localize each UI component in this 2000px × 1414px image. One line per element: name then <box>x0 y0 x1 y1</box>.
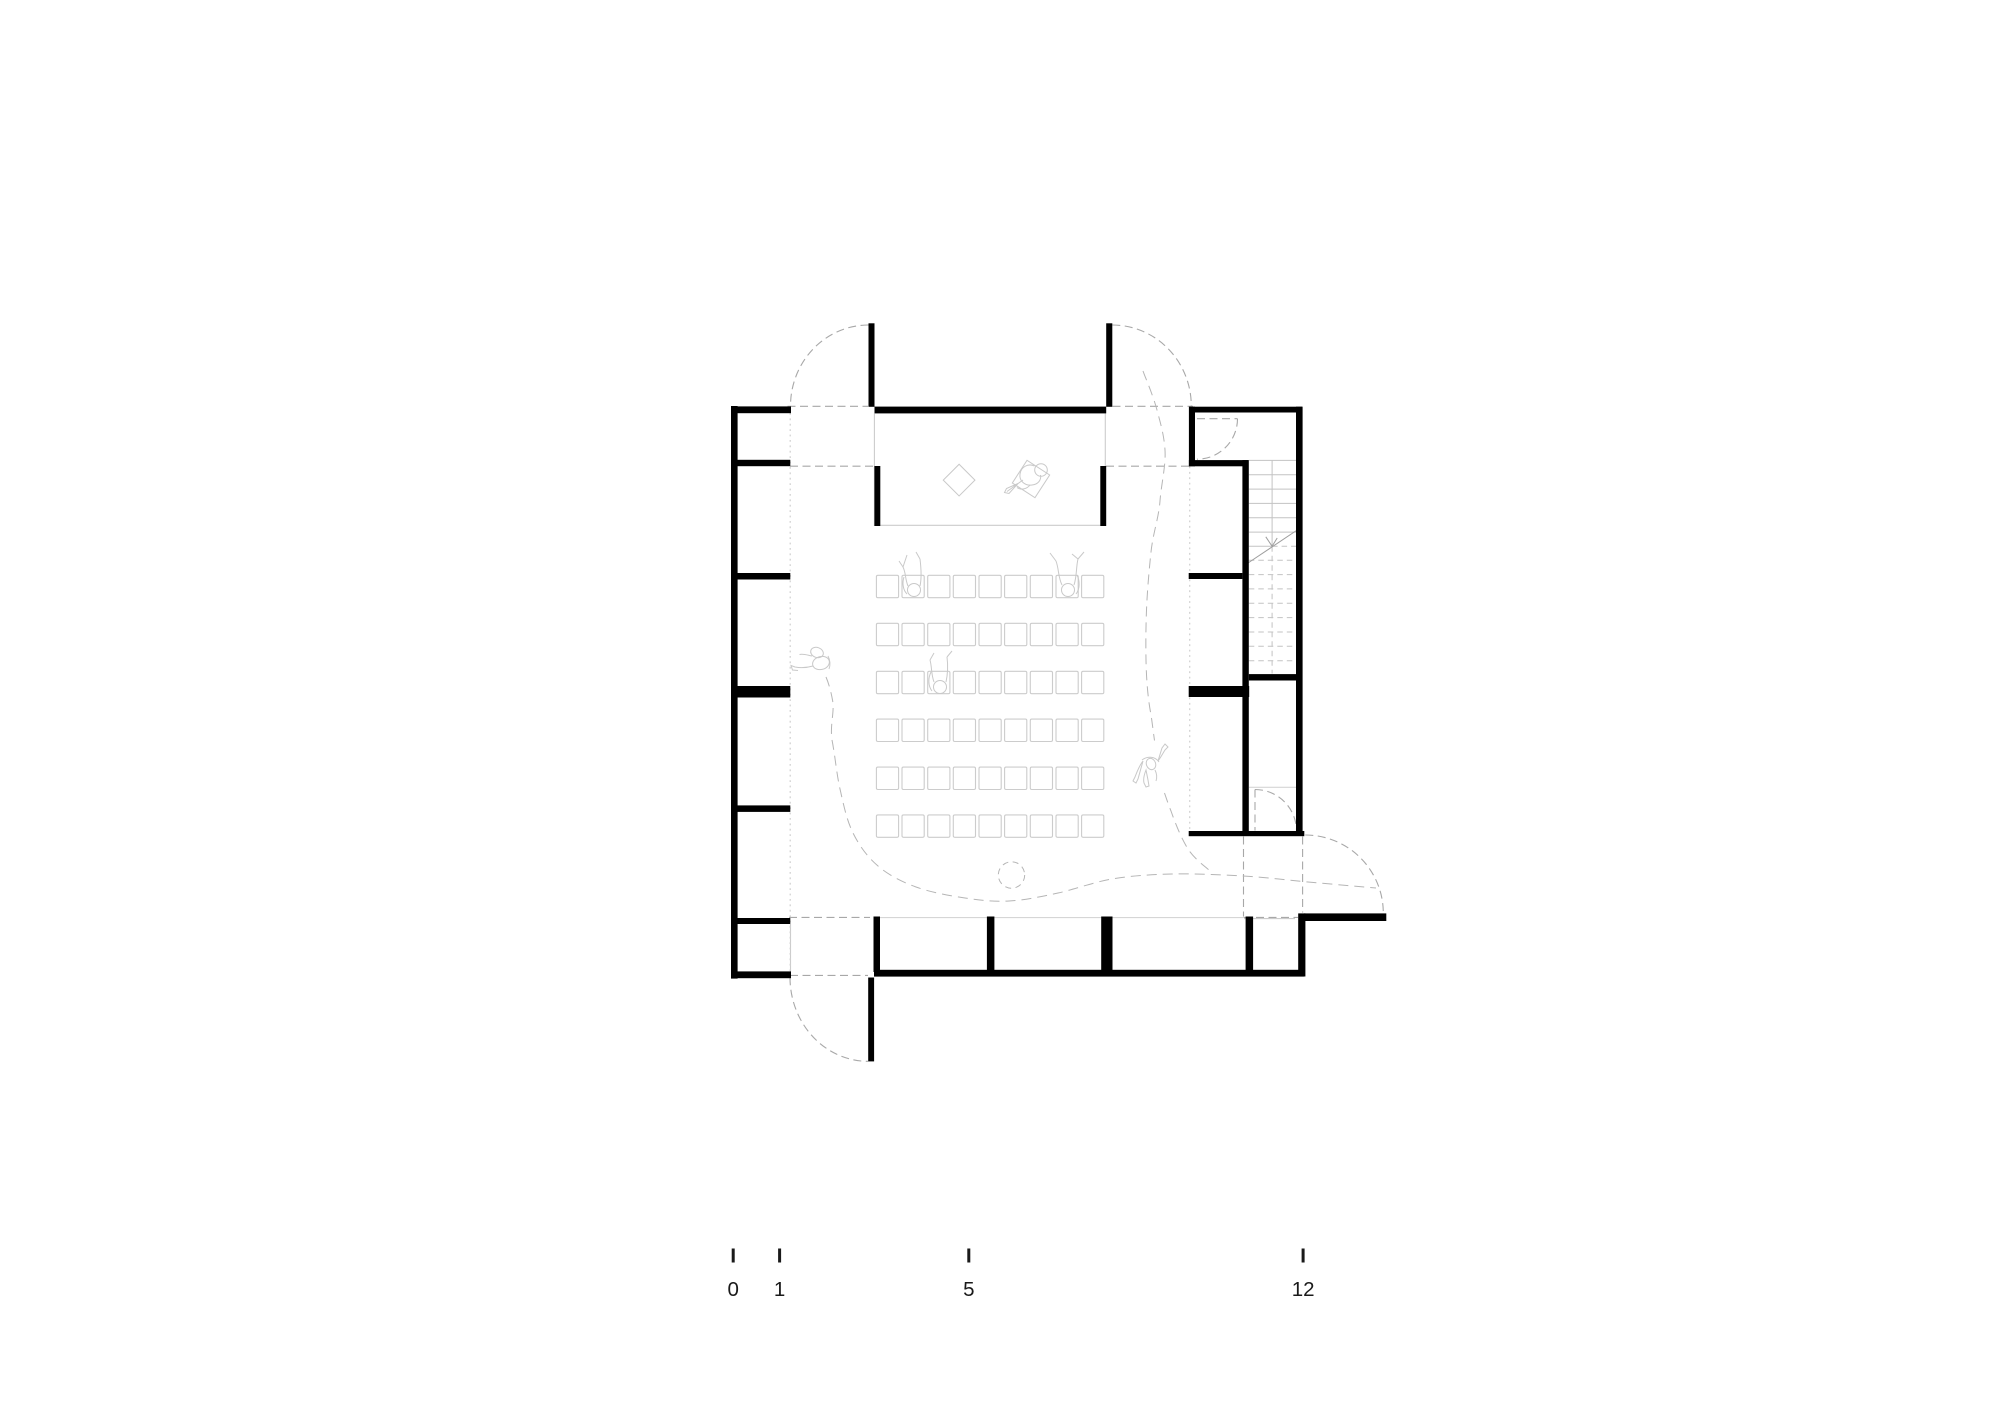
svg-text:5: 5 <box>963 1278 974 1301</box>
svg-text:0: 0 <box>727 1278 738 1301</box>
svg-text:12: 12 <box>1292 1278 1315 1301</box>
svg-text:1: 1 <box>774 1278 785 1301</box>
